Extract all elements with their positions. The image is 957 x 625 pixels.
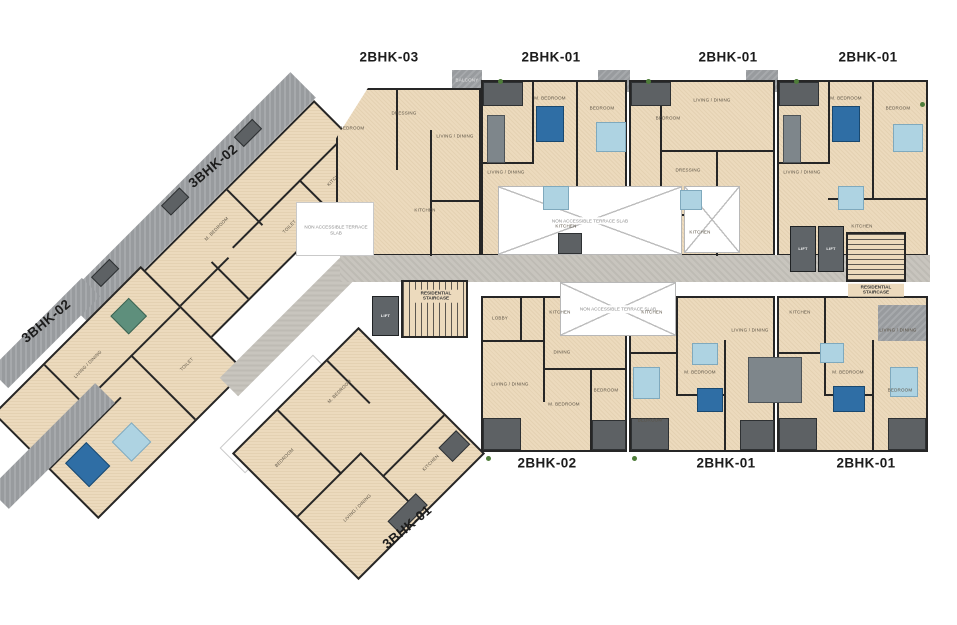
room-label: LIVING / DINING [783, 170, 820, 175]
unit-3bhk-01: BEDROOM M. BEDROOM LIVING / DINING KITCH… [232, 327, 485, 580]
room-label: LIVING / DINING [487, 170, 524, 175]
room-label: M. BEDROOM [548, 402, 580, 407]
plant-icon [632, 456, 637, 461]
room-label: BEDROOM [656, 116, 681, 121]
room-label: LIVING / DINING [731, 328, 768, 333]
bed-icon [112, 422, 152, 462]
wall [631, 352, 678, 354]
wall [576, 82, 578, 200]
room-label: M. BEDROOM [326, 378, 352, 404]
dining-table-icon [838, 186, 864, 210]
room-label: M. BEDROOM [830, 96, 862, 101]
wall [543, 368, 627, 370]
room-label: M. BEDROOM [684, 370, 716, 375]
wall [724, 340, 726, 452]
plant-icon [920, 102, 925, 107]
room-label: BEDROOM [274, 447, 295, 468]
wall [779, 352, 826, 354]
bed-icon [596, 122, 626, 152]
lift-label: LIFT [798, 247, 807, 251]
lift-center: LIFT [372, 296, 399, 336]
room-label: BEDROOM [638, 418, 663, 423]
staircase-center: RESIDENTIAL STAIRCASE [401, 280, 468, 338]
balcony-deck [631, 418, 669, 450]
room-label: KITCHEN [789, 310, 810, 315]
bed-icon [536, 106, 564, 142]
unit-label-2bhk-02: 2BHK-02 [517, 456, 576, 471]
room-label: TOILET [282, 219, 297, 234]
bed-icon [697, 388, 723, 412]
room-label: DRESSING [675, 168, 700, 173]
room-label: BEDROOM [340, 126, 365, 131]
unit-label-2bhk-01-top-2: 2BHK-01 [698, 50, 757, 65]
wall [872, 340, 874, 452]
room-label: TOILET [179, 356, 194, 371]
wall [382, 415, 445, 478]
room-label: BEDROOM [590, 106, 615, 111]
wall [532, 82, 534, 162]
bed-icon [832, 106, 860, 142]
room-label: KITCHEN [641, 310, 662, 315]
balcony-deck [631, 82, 671, 106]
plant-icon [646, 79, 651, 84]
room-label: M. BEDROOM [534, 96, 566, 101]
wall [520, 296, 522, 342]
room-label: DINING [554, 350, 571, 355]
dining-table-icon [680, 190, 702, 210]
balcony-deck [779, 82, 819, 106]
room-label: LIVING / DINING [436, 134, 473, 139]
room-label: M. BEDROOM [204, 216, 230, 242]
plant-icon [486, 456, 491, 461]
lift-label: LIFT [826, 247, 835, 251]
wing-balcony [161, 187, 189, 215]
bed-icon [833, 386, 865, 412]
unit-label-2bhk-01-top-3: 2BHK-01 [838, 50, 897, 65]
balcony-deck [483, 418, 521, 450]
side-deck [878, 305, 926, 341]
room-label: BEDROOM [888, 388, 913, 393]
wall [483, 340, 543, 342]
room-label: LIVING / DINING [491, 382, 528, 387]
plant-icon [498, 79, 503, 84]
balcony-deck [779, 418, 817, 450]
terrace-notch: NON ACCESSIBLE TERRACE SLAB [296, 202, 374, 256]
balcony-deck [740, 420, 774, 450]
bed-icon [633, 367, 660, 399]
room-label: BALCONY [456, 78, 479, 83]
terrace-xbox: NON ACCESSIBLE TERRACE SLAB [498, 186, 682, 255]
dining-table-icon [820, 343, 844, 363]
room-label: KITCHEN [421, 453, 439, 471]
lift-right-1: LIFT [790, 226, 816, 272]
wall [543, 296, 545, 402]
wall [872, 82, 874, 200]
room-label: KITCHEN [851, 224, 872, 229]
room-label: KITCHEN [555, 224, 576, 229]
lift-right-2: LIFT [818, 226, 844, 272]
dining-table-icon [692, 343, 718, 365]
room-label: M. BEDROOM [832, 370, 864, 375]
unit-label-2bhk-01-bottom-2: 2BHK-01 [836, 456, 895, 471]
staircase-label: RESIDENTIAL STAIRCASE [411, 290, 461, 303]
wall [430, 200, 481, 202]
bed-icon [893, 124, 923, 152]
room-label: LIVING / DINING [693, 98, 730, 103]
room-label: LIVING / DINING [879, 328, 916, 333]
room-label: LIVING / DINING [73, 349, 103, 379]
room-label: KITCHEN [414, 208, 435, 213]
unit-label-2bhk-03: 2BHK-03 [359, 50, 418, 65]
balcony-deck [592, 420, 626, 450]
sofa-icon [783, 115, 801, 163]
unit-label-2bhk-01-bottom-1: 2BHK-01 [696, 456, 755, 471]
staircase-right [846, 232, 906, 282]
wall [396, 90, 398, 170]
wall [430, 130, 432, 256]
balcony-deck [888, 418, 926, 450]
unit-label-2bhk-01-top-1: 2BHK-01 [521, 50, 580, 65]
sofa-icon [748, 357, 802, 403]
floor-plan-canvas: BEDROOM M. BEDROOM TOILET KITCHEN LIVING… [0, 0, 957, 625]
wall [828, 82, 830, 162]
wing-balcony [234, 119, 262, 147]
room-label: DRESSING [391, 111, 416, 116]
balcony-deck [483, 82, 523, 106]
terrace-note: NON ACCESSIBLE TERRACE SLAB [304, 225, 368, 236]
room-label: KITCHEN [549, 310, 570, 315]
duct [558, 233, 582, 254]
room-label: LIVING / DINING [342, 493, 372, 523]
bed-icon [890, 367, 918, 397]
room-label: BEDROOM [886, 106, 911, 111]
room-label: BEDROOM [594, 388, 619, 393]
wing-balcony [91, 259, 119, 287]
bed-icon [65, 442, 110, 487]
wall [277, 410, 342, 475]
wing-balcony [438, 430, 470, 462]
dining-table-icon [543, 186, 569, 210]
table-icon [110, 298, 147, 335]
sofa-icon [487, 115, 505, 163]
room-label: KITCHEN [689, 230, 710, 235]
staircase-label: RESIDENTIAL STAIRCASE [848, 284, 904, 297]
wall [676, 296, 678, 396]
lift-label: LIFT [381, 314, 390, 318]
plant-icon [794, 79, 799, 84]
room-label: LOBBY [492, 316, 508, 321]
